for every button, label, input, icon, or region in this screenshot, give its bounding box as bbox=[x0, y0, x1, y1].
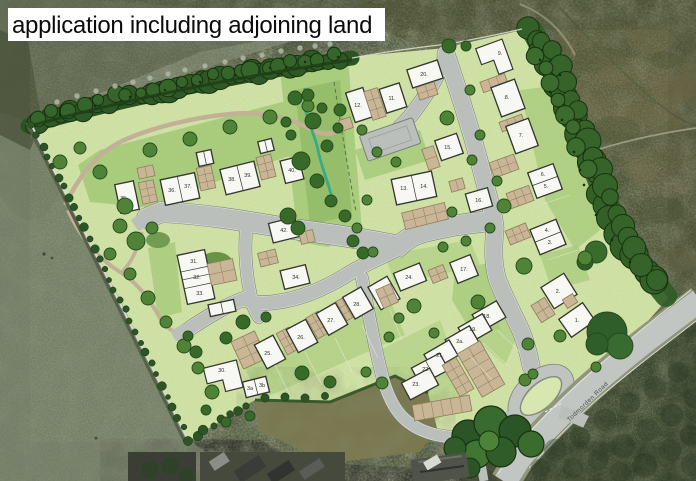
svg-text:5.: 5. bbox=[544, 184, 549, 190]
svg-text:40.: 40. bbox=[288, 168, 296, 174]
svg-text:39.: 39. bbox=[244, 173, 252, 179]
svg-text:1.: 1. bbox=[575, 318, 580, 324]
svg-text:31.: 31. bbox=[190, 259, 198, 265]
svg-text:38.: 38. bbox=[228, 177, 236, 183]
svg-text:34.: 34. bbox=[292, 275, 300, 281]
svg-text:2a.: 2a. bbox=[456, 339, 464, 345]
svg-text:12.: 12. bbox=[354, 103, 362, 109]
svg-text:24.: 24. bbox=[405, 275, 413, 281]
svg-text:23.: 23. bbox=[412, 382, 420, 388]
svg-text:26.: 26. bbox=[297, 335, 305, 341]
svg-text:15.: 15. bbox=[444, 145, 452, 151]
svg-text:32.: 32. bbox=[193, 275, 201, 281]
svg-text:42.: 42. bbox=[280, 228, 288, 234]
svg-text:37.: 37. bbox=[184, 184, 192, 190]
svg-text:4.: 4. bbox=[545, 228, 550, 234]
svg-text:7.: 7. bbox=[519, 133, 524, 139]
svg-text:6.: 6. bbox=[541, 172, 546, 178]
svg-text:3b: 3b bbox=[259, 383, 265, 389]
svg-text:28.: 28. bbox=[353, 302, 361, 308]
svg-text:17.: 17. bbox=[460, 267, 468, 273]
svg-text:8.: 8. bbox=[505, 95, 510, 101]
svg-text:33.: 33. bbox=[196, 291, 204, 297]
svg-text:3a: 3a bbox=[247, 386, 253, 392]
svg-text:9.: 9. bbox=[498, 51, 503, 57]
svg-text:19.: 19. bbox=[469, 327, 477, 333]
svg-text:25.: 25. bbox=[264, 351, 272, 357]
svg-text:11.: 11. bbox=[388, 96, 395, 102]
svg-text:20.: 20. bbox=[420, 72, 428, 78]
svg-text:27.: 27. bbox=[327, 318, 335, 324]
svg-text:application including adjoinin: application including adjoining land bbox=[12, 12, 372, 39]
svg-text:2.: 2. bbox=[556, 289, 561, 295]
svg-text:30.: 30. bbox=[218, 368, 226, 374]
svg-text:13.: 13. bbox=[400, 186, 408, 192]
svg-text:36.: 36. bbox=[168, 188, 176, 194]
svg-text:22.: 22. bbox=[422, 367, 430, 373]
svg-text:21.: 21. bbox=[436, 353, 444, 359]
svg-text:14.: 14. bbox=[420, 184, 428, 190]
svg-text:18.: 18. bbox=[483, 314, 491, 320]
svg-text:3.: 3. bbox=[548, 240, 553, 246]
svg-text:16.: 16. bbox=[475, 198, 483, 204]
